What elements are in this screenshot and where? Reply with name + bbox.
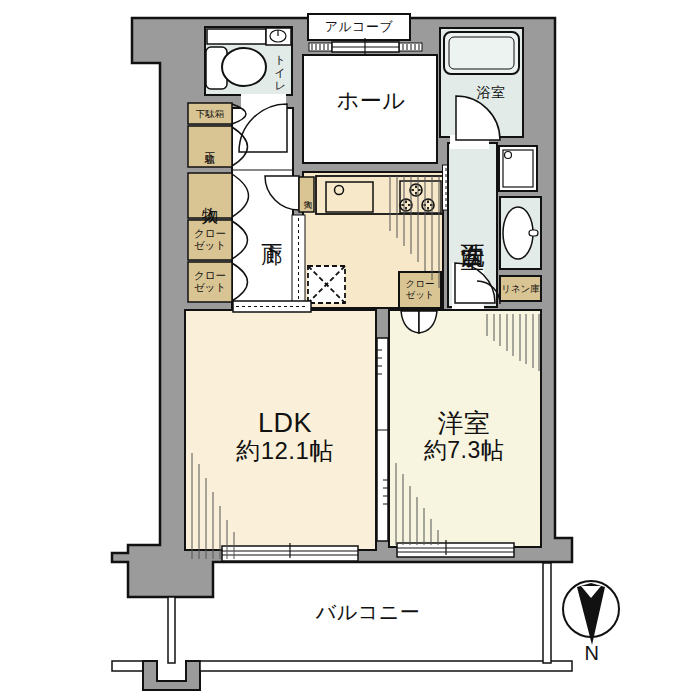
label-shoe-cabinet-bottom: 下駄箱: [204, 145, 215, 148]
label-bathroom: 浴室: [477, 85, 506, 101]
label-toilet: トイレ: [274, 47, 286, 88]
label-closet-left-2: クローゼット: [192, 270, 228, 294]
label-alcove: アルコーブ: [325, 20, 394, 35]
label-linen-closet: リネン庫: [501, 284, 540, 295]
label-ldk: LDK 約12.1帖: [236, 408, 334, 465]
kitchen-sink: [326, 182, 373, 212]
floorplan-page: アルコーブ トイレ ホール 浴室 洗面室 リネン庫 下駄箱 下駄箱 物入 クロー…: [0, 0, 700, 700]
label-compass-north: N: [585, 642, 600, 664]
label-corridor: 廊下: [260, 227, 284, 229]
balcony-rail-bottom: [200, 661, 572, 671]
compass-icon: [563, 581, 619, 645]
fridge-space: [308, 266, 345, 303]
corridor-kitchen-opening: [292, 215, 305, 302]
western-room-size: 約7.3帖: [424, 438, 504, 464]
balcony-rail-left-stub: [112, 661, 143, 671]
label-closet-left-1: クローゼット: [192, 228, 228, 252]
balcony-divider: [168, 597, 175, 663]
ldk-western-sliding-door: [377, 338, 388, 541]
ldk-size: 約12.1帖: [236, 439, 334, 466]
ldk-name: LDK: [236, 408, 334, 438]
label-shoe-cabinet-top: 下駄箱: [196, 108, 225, 119]
western-room-name: 洋室: [424, 409, 504, 438]
balcony-rail-right: [543, 563, 551, 663]
cabinet-storage-kitchen: [299, 177, 314, 212]
label-western-room: 洋室 約7.3帖: [424, 409, 504, 464]
ldk-balcony-window: [222, 543, 358, 561]
toilet-counter: [207, 29, 266, 44]
label-storage-left: 物入: [201, 194, 219, 196]
balcony-drain-block: [143, 661, 200, 690]
bathtub: [444, 32, 519, 74]
label-closet-west: クローゼット: [404, 279, 437, 300]
label-washroom: 洗面室: [459, 225, 486, 228]
western-balcony-window: [397, 540, 514, 557]
label-hall: ホール: [337, 89, 406, 114]
vanity-faucet: [529, 230, 538, 236]
toilet-bowl: [222, 48, 266, 86]
label-balcony: バルコニー: [316, 601, 420, 623]
